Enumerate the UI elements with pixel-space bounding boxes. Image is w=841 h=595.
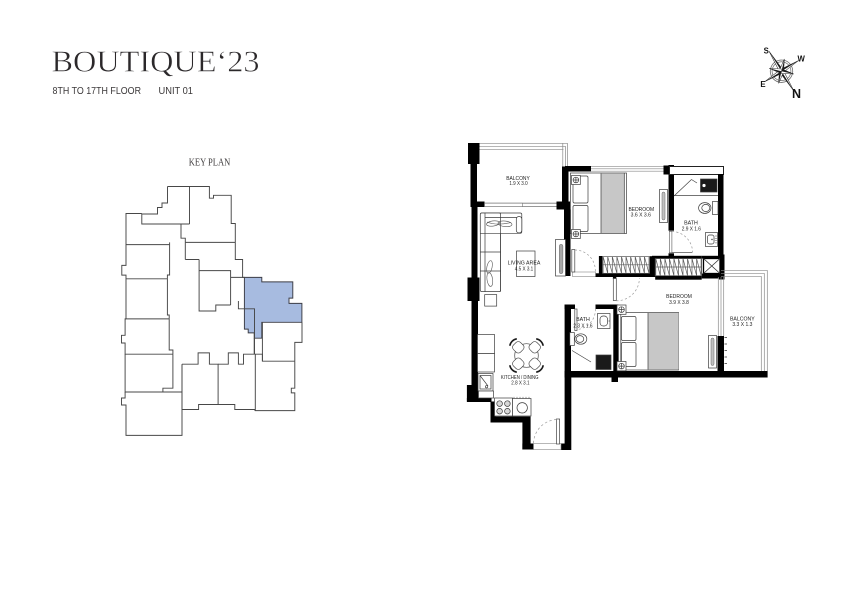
svg-text:8TH TO 17TH FLOOR: 8TH TO 17TH FLOOR (53, 86, 142, 97)
svg-text:KEY PLAN: KEY PLAN (189, 158, 231, 169)
svg-text:E: E (760, 80, 765, 89)
svg-text:BATH: BATH (684, 220, 698, 226)
svg-text:BATH: BATH (576, 317, 590, 323)
svg-text:4.5 X 3.1: 4.5 X 3.1 (515, 266, 534, 272)
svg-text:S: S (764, 47, 769, 56)
svg-text:3.6 X 3.6: 3.6 X 3.6 (631, 212, 651, 218)
svg-text:1.9 X 3.0: 1.9 X 3.0 (509, 181, 527, 187)
svg-text:3.3 X 1.3: 3.3 X 1.3 (732, 322, 752, 328)
svg-text:2.8 X 3.1: 2.8 X 3.1 (511, 380, 529, 386)
svg-text:N: N (792, 87, 801, 101)
svg-text:2.3 X 1.6: 2.3 X 1.6 (573, 324, 592, 330)
svg-text:W: W (798, 55, 806, 64)
svg-text:BOUTIQUE‘23: BOUTIQUE‘23 (52, 45, 260, 79)
svg-text:3.9 X 3.8: 3.9 X 3.8 (669, 300, 689, 306)
svg-text:UNIT 01: UNIT 01 (159, 86, 194, 97)
svg-text:2.9 X 1.6: 2.9 X 1.6 (682, 227, 701, 233)
